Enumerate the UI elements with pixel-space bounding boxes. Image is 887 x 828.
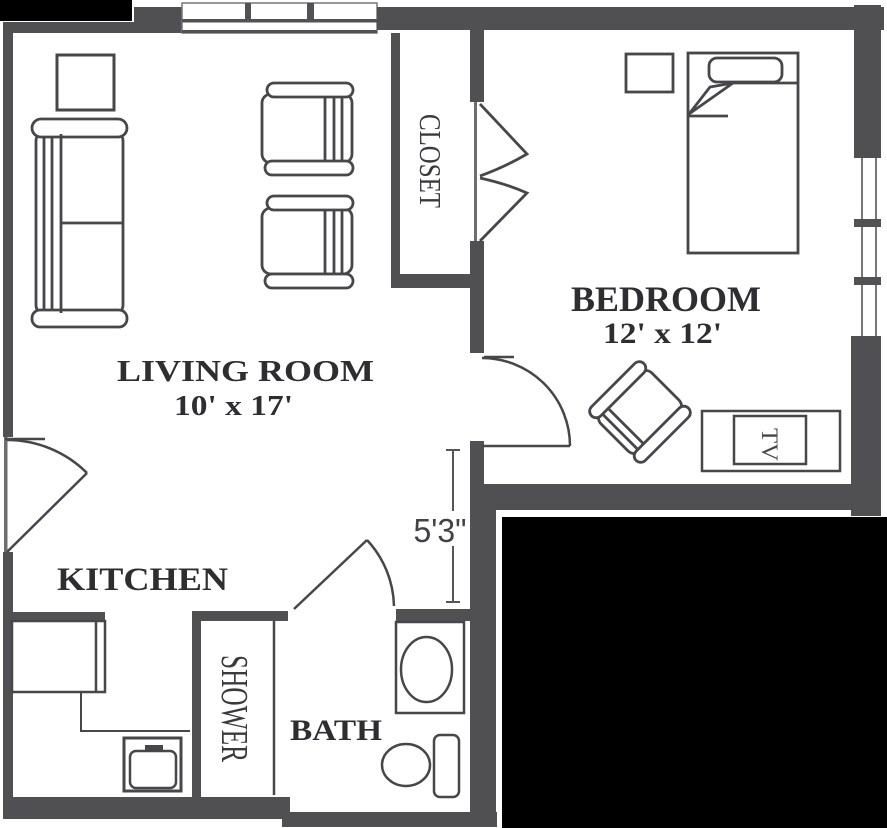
svg-text:10' x 17': 10' x 17'	[174, 390, 293, 422]
svg-text:12' x 12': 12' x 12'	[603, 317, 722, 350]
svg-text:BATH: BATH	[290, 714, 382, 747]
svg-text:5'3": 5'3"	[414, 512, 467, 549]
svg-text:BEDROOM: BEDROOM	[571, 279, 761, 319]
svg-text:SHOWER: SHOWER	[213, 655, 255, 762]
svg-text:KITCHEN: KITCHEN	[57, 562, 228, 598]
svg-text:LIVING ROOM: LIVING ROOM	[117, 353, 374, 388]
svg-text:CLOSET: CLOSET	[413, 114, 448, 208]
svg-text:TV: TV	[757, 428, 782, 461]
